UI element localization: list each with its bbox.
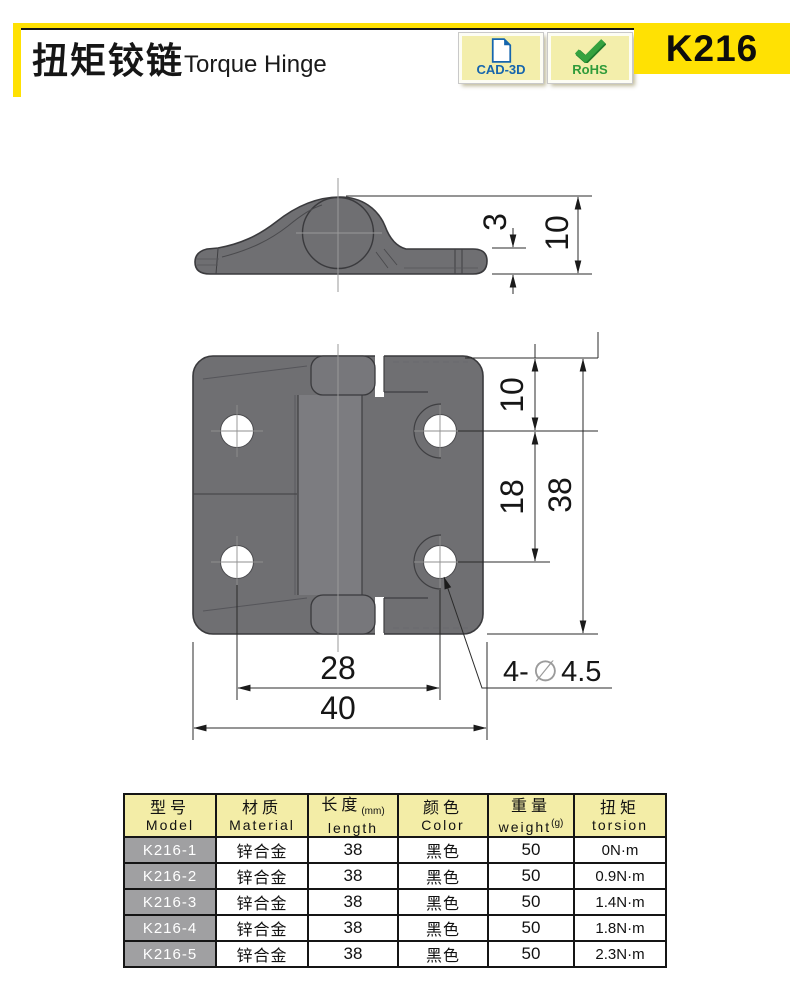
cell-material: 锌合金: [216, 837, 308, 863]
cell-material: 锌合金: [216, 941, 308, 967]
banner-yellow-bar: [13, 23, 21, 97]
cad-3d-badge[interactable]: CAD-3D: [459, 33, 543, 83]
cell-material: 锌合金: [216, 889, 308, 915]
col-header-material: 材质 Material: [216, 794, 308, 837]
cell-length: 38: [308, 863, 398, 889]
front-view: 10 18 38 28 40: [193, 332, 612, 740]
side-view: 3 10: [195, 178, 592, 294]
dim-front-pitch: 18: [494, 432, 535, 561]
cell-material: 锌合金: [216, 915, 308, 941]
col-header-model: 型号 Model: [124, 794, 216, 837]
col-header-weight: 重量 weight(g): [488, 794, 574, 837]
cell-model: K216-3: [124, 889, 216, 915]
table-row: K216-5 锌合金 38 黑色 50 2.3N·m: [124, 941, 666, 967]
table-row: K216-3 锌合金 38 黑色 50 1.4N·m: [124, 889, 666, 915]
cell-length: 38: [308, 889, 398, 915]
col-header-torsion: 扭矩 torsion: [574, 794, 666, 837]
cell-torsion: 0N·m: [574, 837, 666, 863]
cell-model: K216-4: [124, 915, 216, 941]
dim-front-span-label: 28: [320, 650, 356, 686]
table-row: K216-2 锌合金 38 黑色 50 0.9N·m: [124, 863, 666, 889]
cell-weight: 50: [488, 863, 574, 889]
table-row: K216-1 锌合金 38 黑色 50 0N·m: [124, 837, 666, 863]
dim-front-pitch-label: 18: [494, 479, 530, 515]
dim-front-width-label: 40: [320, 690, 356, 726]
spec-table: 型号 Model 材质 Material 长度(mm) length 颜色 Co…: [123, 793, 667, 968]
dim-front-top-offset-label: 10: [494, 377, 530, 413]
dim-front-height-label: 38: [542, 477, 578, 513]
page-subtitle: Torque Hinge: [184, 53, 327, 77]
table-row: K216-4 锌合金 38 黑色 50 1.8N·m: [124, 915, 666, 941]
cell-model: K216-2: [124, 863, 216, 889]
technical-drawing: 3 10: [0, 150, 790, 780]
cell-length: 38: [308, 837, 398, 863]
dim-front-width: 40: [194, 690, 486, 728]
cell-color: 黑色: [398, 837, 488, 863]
cell-length: 38: [308, 941, 398, 967]
col-header-color: 颜色 Color: [398, 794, 488, 837]
banner-rule: [21, 28, 634, 30]
dim-front-top-offset: 10: [494, 359, 535, 430]
cell-weight: 50: [488, 915, 574, 941]
cell-weight: 50: [488, 941, 574, 967]
cell-material: 锌合金: [216, 863, 308, 889]
side-view-profile: [195, 197, 487, 274]
cell-length: 38: [308, 915, 398, 941]
page-title: 扭矩铰链: [32, 43, 184, 79]
cell-weight: 50: [488, 889, 574, 915]
checkmark-icon: [574, 38, 606, 63]
cell-model: K216-1: [124, 837, 216, 863]
dim-side-height-label: 10: [539, 215, 575, 251]
cell-torsion: 2.3N·m: [574, 941, 666, 967]
dim-front-span: 28: [238, 650, 439, 688]
dim-side-thickness-label: 3: [477, 213, 513, 231]
cell-weight: 50: [488, 837, 574, 863]
cell-torsion: 1.8N·m: [574, 915, 666, 941]
rohs-badge[interactable]: RoHS: [548, 33, 632, 83]
dim-side-height: 10: [539, 197, 578, 273]
catalog-page: 扭矩铰链 Torque Hinge CAD-3D RoHS K216: [0, 0, 790, 994]
cell-torsion: 0.9N·m: [574, 863, 666, 889]
cell-color: 黑色: [398, 889, 488, 915]
cell-model: K216-5: [124, 941, 216, 967]
cell-torsion: 1.4N·m: [574, 889, 666, 915]
document-icon: [491, 38, 512, 63]
col-header-length: 长度(mm) length: [308, 794, 398, 837]
cell-color: 黑色: [398, 863, 488, 889]
cad-3d-label: CAD-3D: [476, 63, 525, 77]
rohs-label: RoHS: [572, 63, 607, 77]
cell-color: 黑色: [398, 915, 488, 941]
dim-front-height: 38: [542, 359, 583, 633]
hole-callout-label: 4-∅4.5: [503, 656, 601, 688]
table-header-row: 型号 Model 材质 Material 长度(mm) length 颜色 Co…: [124, 794, 666, 837]
cell-color: 黑色: [398, 941, 488, 967]
model-code: K216: [634, 23, 790, 74]
